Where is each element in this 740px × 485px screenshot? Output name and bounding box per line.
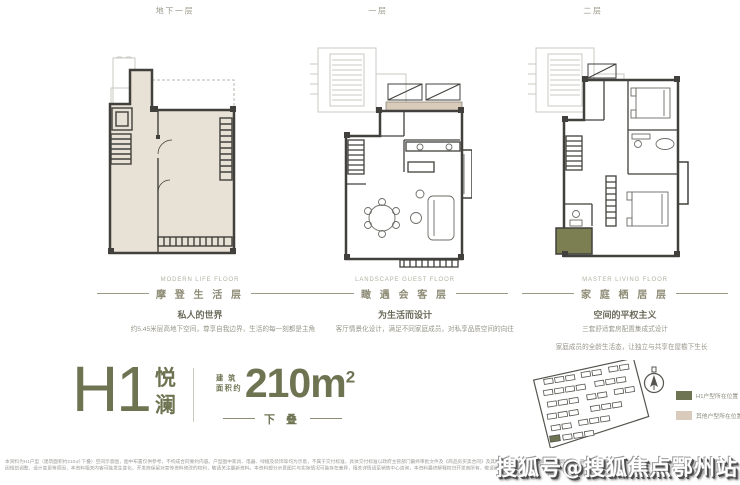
- tier-label-row: 下 叠: [223, 411, 342, 427]
- unit-info: H1 悦 澜 建 筑 面积约 210m2 下 叠: [72, 360, 354, 427]
- basement-floor-plan: [100, 42, 240, 260]
- decorative-line: [522, 293, 574, 294]
- section-en-title: LANDSCAPE GUEST FLOOR: [342, 276, 468, 281]
- map-legend: H1户型所在位置 其他户型所在位置: [676, 388, 740, 423]
- terrace-area: [556, 228, 592, 254]
- area-prefix-label: 建 筑 面积约: [216, 374, 242, 393]
- decorative-line: [302, 293, 354, 294]
- area-prefix-bottom: 面积约: [216, 383, 242, 393]
- section-body: 家庭成员的全龄生活态，让独立与共享在屋檐下生长: [556, 343, 695, 353]
- first-floor-title: 一层: [330, 4, 426, 16]
- site-plan-map: [524, 360, 650, 448]
- legend-label: H1户型所在位置: [696, 391, 738, 400]
- floorplan-flyer: 地下一层 一层 二层: [0, 0, 740, 485]
- legend-swatch-other: [676, 411, 692, 420]
- section-body: 三套舒适套房配置集成式设计: [556, 325, 695, 335]
- unit-name: 悦 澜: [155, 365, 176, 420]
- decorative-line: [97, 293, 149, 294]
- second-floor-description: MASTER LIVING FLOOR 家 庭 栖 居 层 空间的平权主义 三套…: [520, 276, 730, 357]
- decorative-line: [223, 418, 255, 419]
- first-floor-description: LANDSCAPE GUEST FLOOR 瞰 遇 会 客 层 为生活而设计 客…: [300, 276, 510, 340]
- decorative-line: [251, 293, 303, 294]
- basement-floor-title: 地下一层: [127, 4, 223, 16]
- area-number: 210m: [245, 360, 346, 406]
- second-floor-title: 二层: [545, 4, 641, 16]
- second-floor-plan: [528, 44, 690, 268]
- legend-row: 其他户型所在位置: [676, 408, 740, 423]
- highlighted-unit-location: [550, 435, 561, 442]
- section-body: 客厅情景化设计，满足不同家庭成员，对私享品质空间的向往: [336, 325, 475, 335]
- unit-name-char: 澜: [155, 392, 176, 419]
- section-subtitle: 为生活而设计: [311, 307, 500, 321]
- decorative-line: [310, 418, 342, 419]
- legend-swatch-h1: [676, 391, 692, 400]
- section-subtitle: 私人的世界: [106, 307, 295, 321]
- vertical-divider: [193, 368, 194, 422]
- compass-north-icon: [642, 366, 666, 396]
- section-en-title: MASTER LIVING FLOOR: [562, 276, 688, 281]
- first-floor-plan: [308, 44, 472, 268]
- unit-model-code: H1: [72, 360, 150, 419]
- unit-name-char: 悦: [155, 365, 176, 392]
- basement-description: MODERN LIFE FLOOR 摩 登 生 活 层 私人的世界 约5.45米…: [95, 276, 305, 340]
- area-value: 210m2: [245, 365, 354, 402]
- section-cn-title: 瞰 遇 会 客 层: [361, 286, 449, 301]
- site-map-block: H1户型所在位置 其他户型所在位置: [524, 360, 736, 448]
- section-cn-title: 摩 登 生 活 层: [156, 286, 244, 301]
- section-subtitle: 空间的平权主义: [531, 307, 720, 321]
- section-en-title: MODERN LIFE FLOOR: [137, 276, 263, 281]
- section-cn-title: 家 庭 栖 居 层: [581, 286, 669, 301]
- sohu-watermark: 搜狐号@搜狐焦点鄂州站: [496, 452, 738, 482]
- area-prefix-top: 建 筑: [216, 374, 242, 384]
- legend-row: H1户型所在位置: [676, 388, 740, 403]
- legend-label: 其他户型所在位置: [696, 411, 740, 420]
- area-exponent: 2: [346, 367, 354, 386]
- decorative-line: [676, 293, 728, 294]
- section-body: 约5.45米层高地下空间，尊享自我边界，生活的每一刻都是主角: [131, 325, 270, 335]
- decorative-line: [456, 293, 508, 294]
- tier-label: 下 叠: [264, 411, 301, 427]
